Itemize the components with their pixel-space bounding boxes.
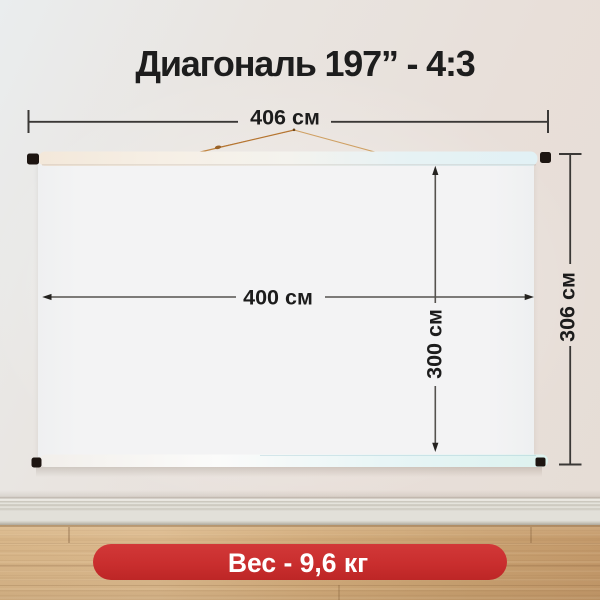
svg-text:300 см: 300 см (423, 309, 447, 379)
svg-text:400 см: 400 см (243, 286, 313, 310)
svg-text:306 см: 306 см (556, 272, 580, 342)
svg-text:406 см: 406 см (250, 106, 320, 130)
